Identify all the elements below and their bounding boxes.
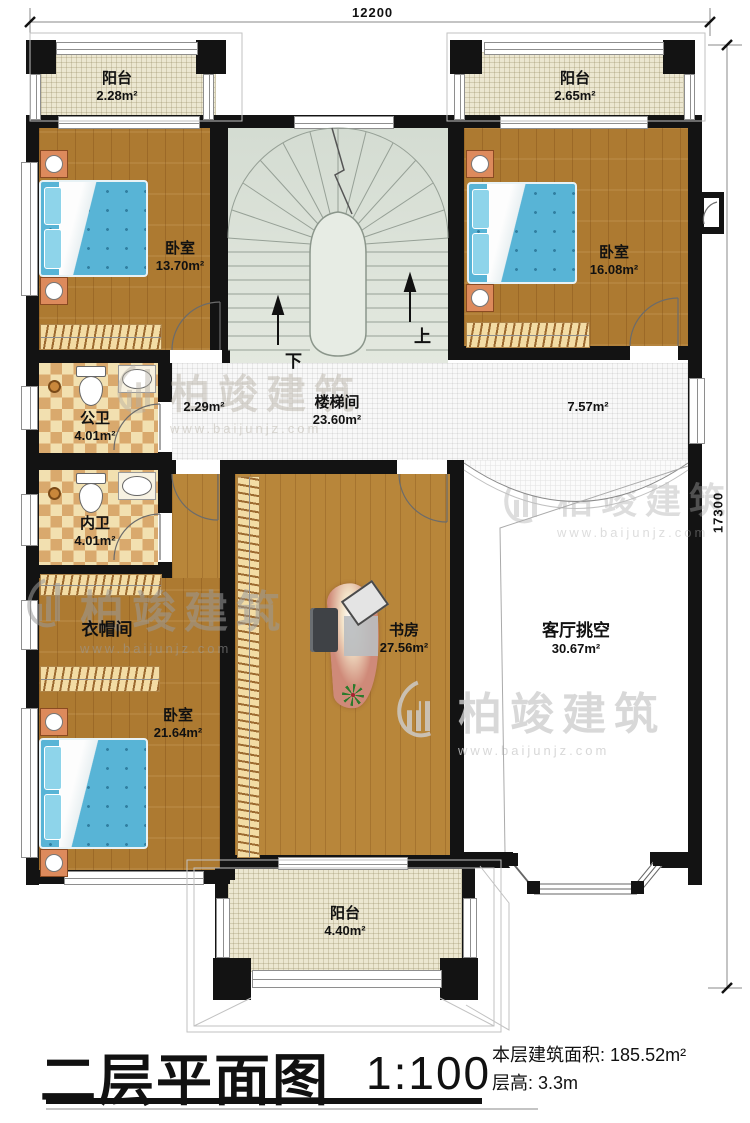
dimension-top: 12200 — [352, 5, 393, 20]
column — [26, 40, 56, 74]
wall-niche-inner — [704, 198, 719, 227]
window — [294, 116, 394, 129]
door-opening — [158, 513, 172, 562]
room-label-balcony-bottom: 阳台 4.40m² — [324, 905, 365, 938]
window — [216, 898, 230, 958]
bed — [467, 182, 577, 284]
page-title: 二层平面图 — [40, 1036, 330, 1117]
floor-area-line: 本层建筑面积: 185.52m² — [492, 1042, 686, 1070]
door-opening — [397, 460, 447, 474]
window — [21, 386, 38, 430]
wall — [448, 115, 464, 360]
column — [663, 40, 695, 74]
wall — [210, 115, 228, 363]
sink-icon — [122, 369, 152, 389]
nightstand — [466, 284, 494, 312]
door-opening — [176, 460, 220, 474]
bed — [39, 180, 148, 277]
sliding-door — [58, 116, 200, 129]
wall — [220, 460, 235, 880]
room-label-stairwell: 楼梯间 23.60m² — [313, 394, 361, 427]
room-label-cloakroom: 衣帽间 — [82, 620, 133, 640]
wall — [450, 460, 464, 868]
balcony-rail-window — [203, 74, 214, 120]
wall — [26, 453, 158, 470]
room-label-bedroom-bl: 卧室 21.64m² — [154, 707, 202, 740]
room-label-bath-private: 内卫 4.01m² — [74, 515, 115, 548]
passage-floor — [172, 474, 220, 578]
balcony-rail-window — [56, 42, 198, 55]
floor-drain-icon — [48, 487, 61, 500]
balcony-rail-window — [252, 970, 442, 988]
hallway-floor — [172, 363, 688, 460]
window — [21, 708, 38, 858]
bed — [39, 738, 148, 849]
door-opening — [630, 346, 678, 360]
column — [213, 958, 251, 1000]
nightstand — [40, 150, 68, 178]
window — [463, 898, 477, 958]
column — [196, 40, 226, 74]
door-opening — [158, 402, 172, 452]
column — [450, 40, 482, 74]
window — [21, 494, 38, 546]
plant-icon — [342, 684, 364, 706]
office-chair — [310, 608, 338, 652]
floor-area-value: 185.52m² — [610, 1045, 686, 1065]
sliding-door — [278, 857, 408, 870]
floor-height-label: 层高: — [492, 1073, 533, 1093]
nightstand — [40, 277, 68, 305]
room-label-study: 书房 27.56m² — [380, 622, 428, 655]
sink-icon — [122, 476, 152, 496]
window — [64, 871, 204, 885]
room-label-bedroom-tr: 卧室 16.08m² — [590, 244, 638, 277]
floor-height-line: 层高: 3.3m — [492, 1070, 686, 1098]
wardrobe — [40, 666, 160, 692]
drawing-scale: 1:100 — [366, 1046, 491, 1100]
dimension-right: 17300 — [711, 483, 726, 543]
room-label-balcony-tl: 阳台 2.28m² — [96, 70, 137, 103]
balcony-rail-window — [454, 74, 465, 120]
nightstand — [466, 150, 494, 178]
bookshelf — [237, 476, 260, 858]
title-underline — [46, 1098, 482, 1104]
floor-plan-sheet: 柏竣建筑 www.baijunjz.com 柏竣建筑 www.baijunjz.… — [0, 0, 750, 1123]
floor-height-value: 3.3m — [538, 1073, 578, 1093]
window — [21, 600, 38, 650]
room-label-bedroom-tl: 卧室 13.70m² — [156, 240, 204, 273]
room-label-living-void: 客厅挑空 30.67m² — [542, 621, 610, 656]
wall — [463, 852, 513, 868]
window — [689, 378, 705, 444]
stair-down-label: 下 — [285, 347, 302, 372]
floor-area-label: 本层建筑面积: — [492, 1045, 605, 1065]
wardrobe — [40, 574, 162, 596]
wall — [650, 852, 702, 868]
door-opening — [170, 350, 222, 363]
nightstand — [40, 849, 68, 877]
column — [440, 958, 478, 1000]
title-underline-thin — [46, 1108, 538, 1110]
stair-up-label: 上 — [414, 322, 431, 347]
area-label-hall-left: 2.29m² — [183, 399, 224, 414]
room-label-bath-public: 公卫 4.01m² — [74, 410, 115, 443]
area-label-hall-right: 7.57m² — [567, 399, 608, 414]
balcony-rail-window — [684, 74, 695, 120]
balcony-rail-window — [30, 74, 41, 120]
floor-drain-icon — [48, 380, 61, 393]
sliding-door — [500, 116, 648, 129]
wardrobe — [466, 322, 590, 348]
balcony-rail-window — [484, 42, 664, 55]
window — [21, 162, 38, 296]
title-info: 本层建筑面积: 185.52m² 层高: 3.3m — [492, 1042, 686, 1098]
nightstand — [40, 708, 68, 736]
wardrobe — [40, 324, 162, 350]
room-label-balcony-tr: 阳台 2.65m² — [554, 70, 595, 103]
